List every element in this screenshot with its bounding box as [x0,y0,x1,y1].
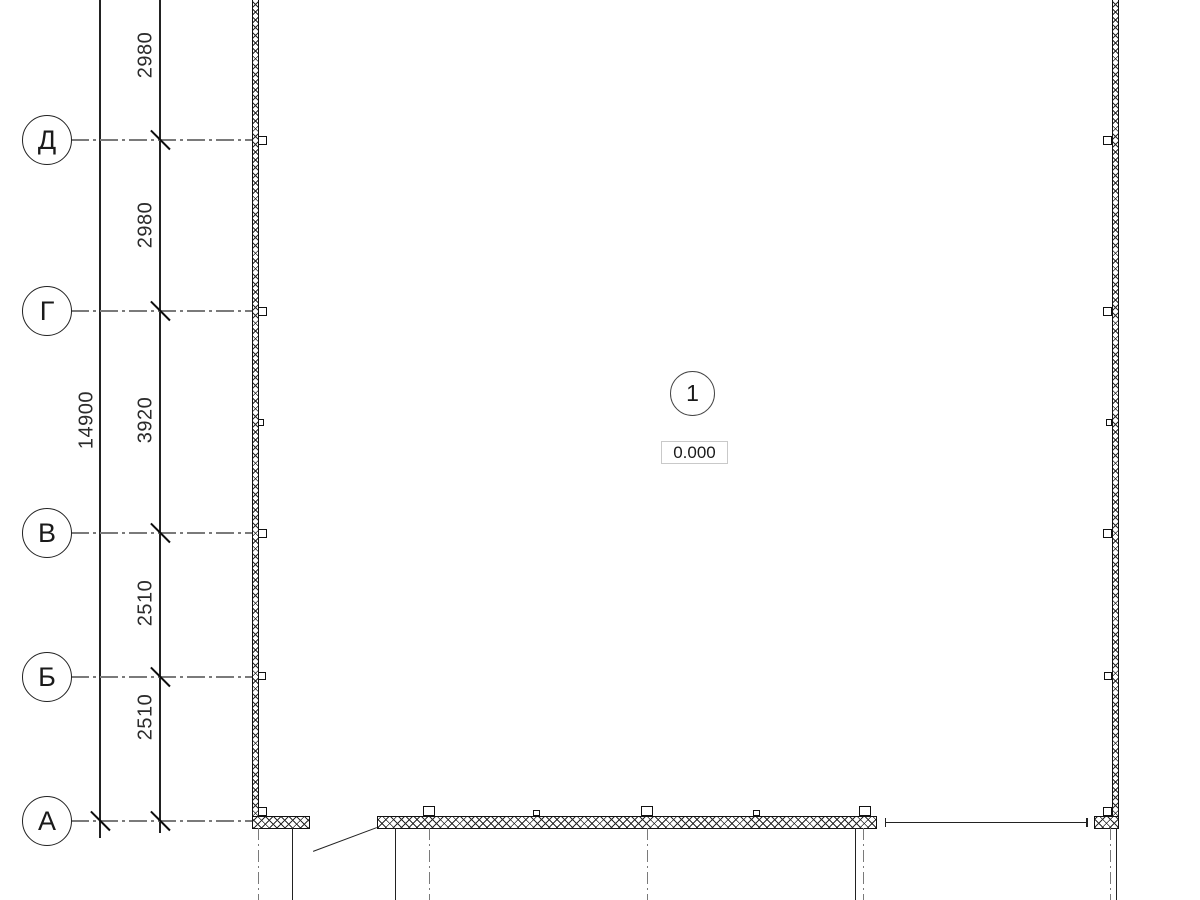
grid-label-g: Г [40,296,55,327]
window-jamb-tick-left [885,818,887,827]
grid-label-d: Д [38,125,56,156]
wall-bottom-main [377,816,877,829]
door-leaf-line [313,826,377,851]
wall-left [252,0,259,828]
wall-marker [1103,529,1112,538]
wall-marker [258,419,264,426]
overall-dim-text: 14900 [76,391,99,449]
wall-bottom-right-stub [1094,816,1119,829]
wall-marker [753,810,760,816]
wall-marker [533,810,540,816]
dim-text-3: 3920 [135,397,158,444]
overall-dimension-line [99,0,100,838]
wall-marker [423,806,435,816]
grid-label-v: В [38,518,56,549]
dim-text-1: 2980 [135,32,158,79]
floor-plan-canvas: Д Г В Б А 2980 2980 3920 2510 2510 14900 [0,0,1200,900]
grid-bubble-d: Д [22,115,72,165]
grid-bubble-v: В [22,508,72,558]
axis-line-below [1110,828,1111,900]
wall-marker [258,307,267,316]
grid-bubble-b: Б [22,652,72,702]
edge-line-below [855,828,856,900]
wall-marker [258,136,267,145]
axis-line-below [647,828,648,900]
edge-line-below [395,828,396,900]
edge-line-below [1116,828,1117,900]
wall-marker [1106,419,1112,426]
segment-dimension-line [159,0,160,833]
wall-marker [258,529,267,538]
dim-text-4: 2510 [135,580,158,627]
wall-marker [1104,672,1112,680]
grid-label-a: А [38,806,56,837]
wall-right [1112,0,1119,828]
axis-line-below [258,828,259,900]
axis-line-below [429,828,430,900]
wall-marker [1103,307,1112,316]
room-number-tag: 1 [670,371,715,416]
elevation-label-box: 0.000 [661,441,728,464]
wall-marker [641,806,653,816]
wall-marker [258,672,266,680]
wall-marker [859,806,871,816]
room-number: 1 [686,380,699,407]
wall-marker [1103,136,1112,145]
grid-label-b: Б [38,662,56,693]
window-opening-line [885,822,1087,824]
grid-bubble-a: А [22,796,72,846]
dim-text-2: 2980 [135,202,158,249]
wall-bottom-left-stub [252,816,310,829]
elevation-value: 0.000 [673,443,716,463]
wall-marker [258,807,267,816]
grid-bubble-g: Г [22,286,72,336]
window-jamb-tick-right [1086,818,1088,827]
edge-line-below [292,828,293,900]
axis-line-below [863,828,864,900]
wall-marker [1103,807,1112,816]
dim-text-5: 2510 [135,694,158,741]
